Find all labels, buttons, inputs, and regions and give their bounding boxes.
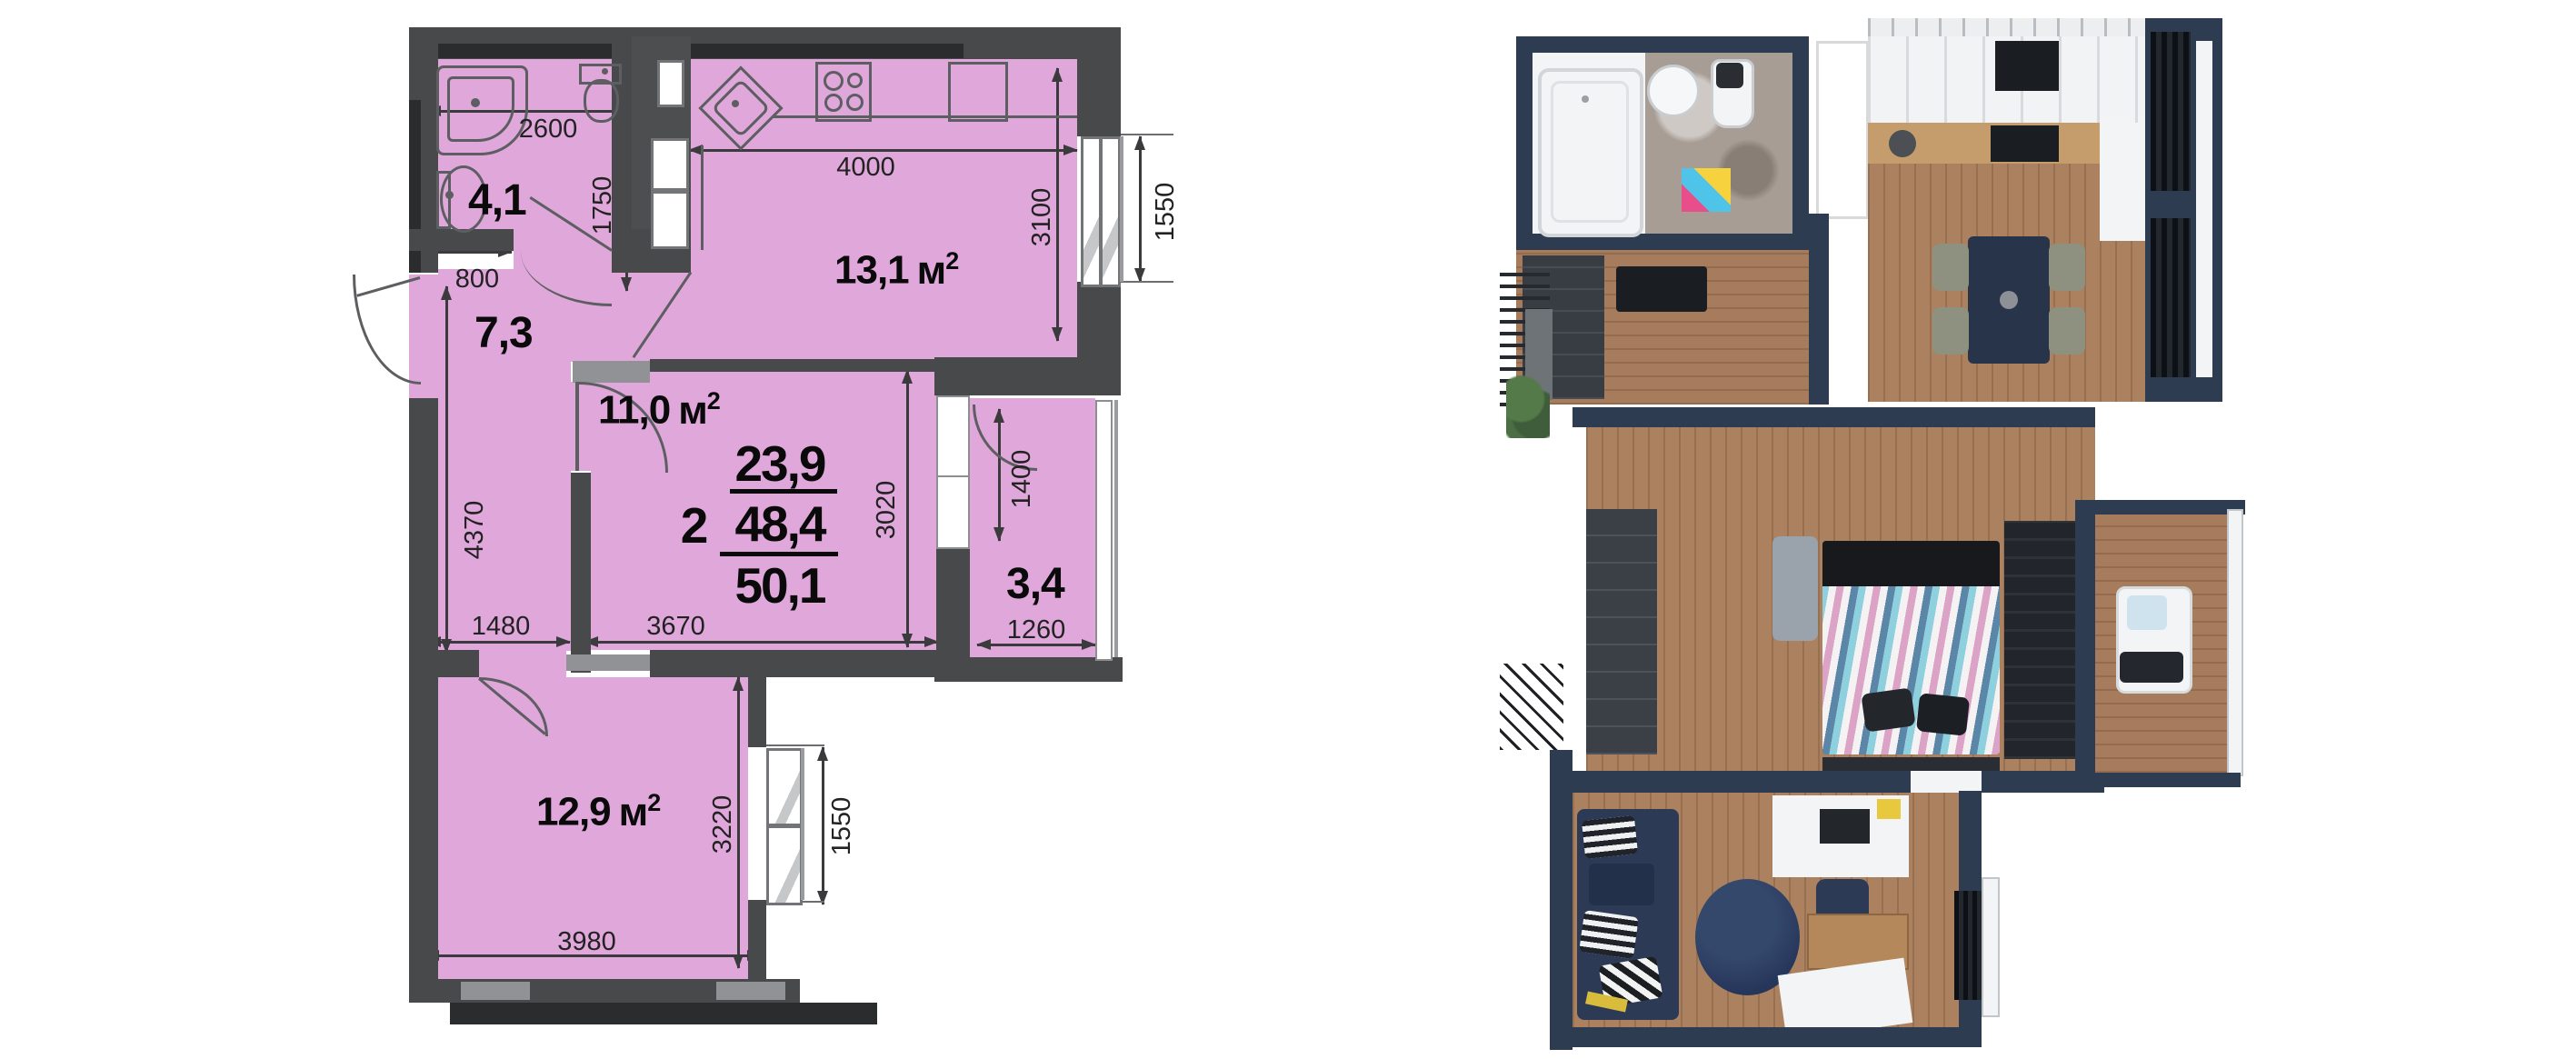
dim-kitchen-depth-arrow xyxy=(1056,68,1059,341)
wall-bottom-opening xyxy=(716,982,785,1000)
wall-hall-living xyxy=(571,473,591,673)
render-balcony-glazing xyxy=(2227,509,2243,776)
wall-living-bottom xyxy=(650,650,936,677)
wall-bedroom-top-left xyxy=(409,650,479,677)
render-entry-bench xyxy=(1616,266,1707,312)
room-area-kitchen: 13,1м2 xyxy=(834,247,958,294)
wall-balcony-bottom xyxy=(934,657,1123,682)
render-range-hood xyxy=(1995,41,2059,91)
summary-living-area: 23,9 xyxy=(725,435,834,493)
render-table-decor xyxy=(2000,291,2018,309)
render-window-frame xyxy=(2196,41,2212,377)
render-mid-wall xyxy=(1809,214,1829,405)
dim-kitchen-width: 4000 xyxy=(823,153,909,183)
dim-hall-depth: 4370 xyxy=(460,489,489,571)
render-plant xyxy=(1506,373,1550,438)
dim-balcony-depth: 1400 xyxy=(1007,438,1036,520)
render-bedroom-bottom-wall xyxy=(1573,771,2104,793)
vent-duct xyxy=(651,138,689,191)
render-chair xyxy=(2049,244,2085,291)
kitchen-window xyxy=(1081,136,1102,287)
dim-kitchen-window: 1550 xyxy=(1151,171,1180,253)
wall-bedroom-right-upper xyxy=(748,650,766,747)
dim-bedroom-window-arrow xyxy=(822,747,824,904)
render-desk-paper xyxy=(1877,799,1901,819)
dim-bedroom-depth-arrow xyxy=(737,677,740,968)
balcony-glazing-outer-edge xyxy=(1114,400,1118,657)
render-tall-cabinet xyxy=(2100,123,2145,241)
vent-duct xyxy=(657,60,684,107)
dim-hall-depth-arrow xyxy=(445,286,448,653)
room-area-living: 11,0м2 xyxy=(598,387,720,434)
render-bath-rug xyxy=(1682,168,1731,212)
render-living-left-wall xyxy=(1550,750,1573,1050)
render-curtain xyxy=(2151,218,2191,377)
render-coat-rack xyxy=(1500,664,1563,750)
kitchen-sink-drain xyxy=(732,100,739,107)
summary-total-area: 50,1 xyxy=(725,556,834,614)
render-bed-pillow xyxy=(1861,687,1915,732)
room-area-bedroom: 12,9м2 xyxy=(536,789,660,835)
render-curtain xyxy=(1954,891,1982,1000)
render-top-window-band xyxy=(1868,18,2145,36)
room-area-bathroom: 4,1 xyxy=(468,175,526,225)
render-living-window xyxy=(1982,877,2000,1017)
render-sofa-pillow xyxy=(1589,864,1654,905)
wall-balcony-partition-lower xyxy=(936,545,970,657)
vent-duct xyxy=(651,191,689,249)
bedroom-window xyxy=(766,825,803,905)
render-laptop xyxy=(1820,809,1870,844)
kitchen-window-outer-edge xyxy=(1120,136,1123,282)
render-bathtub-drain xyxy=(1582,95,1589,103)
dim-living-depth: 3020 xyxy=(872,469,901,551)
summary-divider xyxy=(730,489,837,494)
dim-bath-depth: 1750 xyxy=(588,165,617,246)
render-chair xyxy=(1932,307,1969,355)
render-living-bottom-wall xyxy=(1550,1027,1982,1047)
render-stove-top xyxy=(1991,125,2059,162)
dim-living-width: 3670 xyxy=(633,612,719,642)
render-bed-mat xyxy=(1822,757,2000,772)
page: { "colors": { "plan_room_fill": "#dfa7da… xyxy=(0,0,2576,1059)
render-bench xyxy=(1772,536,1818,641)
render-wardrobe xyxy=(2004,521,2075,759)
dim-bath-width: 2600 xyxy=(507,115,589,145)
render-bedroom-top-wall xyxy=(1573,407,2095,427)
render-balcony-blanket xyxy=(2120,652,2183,683)
balcony-window xyxy=(936,475,970,549)
bedroom-window xyxy=(766,748,803,826)
extension-line xyxy=(1117,281,1173,283)
bedroom-door-threshold xyxy=(479,650,566,677)
render-bathtub-rim xyxy=(1551,81,1629,223)
render-toilet-lid xyxy=(1716,63,1743,88)
entry-door-arc xyxy=(353,275,421,385)
kitchen-window xyxy=(1100,136,1121,287)
stove-icon xyxy=(815,62,872,122)
dim-kitchen-depth: 3100 xyxy=(1027,176,1056,258)
room-area-hallway: 7,3 xyxy=(474,308,533,358)
lintel-bedroom-door xyxy=(566,654,650,671)
dim-hall-width: 1480 xyxy=(460,612,542,642)
render-kitchen-sink xyxy=(1889,130,1916,157)
wall-left-lower xyxy=(409,398,438,1000)
render-sofa-pillow xyxy=(1579,910,1639,959)
summary-rooms-count: 2 xyxy=(662,496,725,554)
render-living-right-wall-lower xyxy=(1959,1000,1982,1047)
render-balcony-bottom-wall xyxy=(2095,773,2241,787)
fridge-icon xyxy=(948,62,1008,122)
dim-kitchen-width-arrow xyxy=(689,149,1077,152)
render-sofa-pillow xyxy=(1582,815,1638,859)
floor-plan-2d: 2600 1750 800 4000 3100 1550 3020 1400 1… xyxy=(400,18,1227,1041)
dim-balcony-width: 1260 xyxy=(995,615,1077,645)
stove-burner xyxy=(824,71,844,91)
dim-bedroom-window: 1550 xyxy=(827,785,856,867)
bedroom-window-outer-edge xyxy=(801,748,804,900)
wall-bottom-opening xyxy=(461,982,530,1000)
balcony-door xyxy=(936,395,970,477)
counter-edge-v xyxy=(701,145,704,250)
wall-bottom-outer xyxy=(450,1003,877,1024)
stove-burner xyxy=(846,94,864,111)
dim-kitchen-window-arrow xyxy=(1139,136,1142,282)
render-curtain xyxy=(2151,32,2191,191)
render-star-pillow xyxy=(2127,595,2167,630)
wall-bedroom-right-lower xyxy=(748,900,766,979)
render-balcony-top-wall xyxy=(2095,500,2245,515)
render-bedroom-balcony-wall xyxy=(2075,500,2095,773)
lintel-living-door xyxy=(573,361,650,383)
shower-drain xyxy=(471,98,480,107)
stove-burner xyxy=(824,94,843,112)
render-washbasin xyxy=(1647,65,1700,117)
wall-top-core xyxy=(427,44,964,58)
render-bed-pillow xyxy=(1916,693,1970,736)
floor-plan-3d-render xyxy=(1500,5,2354,1050)
render-bedroom-door-gap xyxy=(1911,771,1982,793)
render-living-right-wall-upper xyxy=(1959,791,1982,891)
wall-kitchen-right-lower xyxy=(1077,282,1121,368)
summary-area-without-balcony: 48,4 xyxy=(725,495,834,553)
wall-kitchen-bottom xyxy=(650,359,936,372)
dim-bedroom-depth: 3220 xyxy=(708,784,737,865)
room-area-balcony: 3,4 xyxy=(1006,559,1064,609)
wall-kitchen-right-upper xyxy=(1077,27,1121,136)
render-chair xyxy=(2049,307,2085,355)
render-chair xyxy=(1932,244,1969,291)
washbasin-drain xyxy=(445,191,454,199)
balcony-glazing xyxy=(1095,400,1113,661)
toilet-button xyxy=(602,68,608,75)
dim-hall-door: 800 xyxy=(445,265,509,295)
extension-line xyxy=(1117,134,1173,135)
render-bed-throw xyxy=(1822,541,2000,586)
render-hall-doorway xyxy=(1816,41,1869,219)
extension-line xyxy=(766,744,824,746)
dim-bedroom-width: 3980 xyxy=(544,927,630,957)
dim-living-depth-arrow xyxy=(906,370,909,647)
stove-burner xyxy=(847,73,863,88)
render-bedroom-closet xyxy=(1586,509,1657,754)
